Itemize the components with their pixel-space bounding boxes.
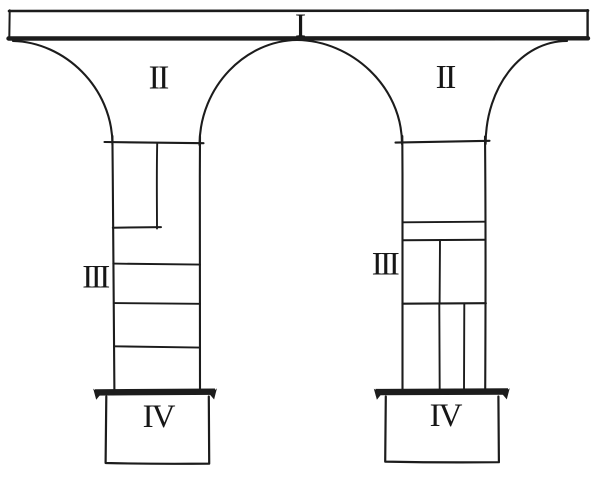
left-column-divider-2 (114, 303, 200, 304)
region-labels: I II II III III IV IV (82, 8, 462, 436)
right-column-right-edge (485, 137, 486, 392)
label-region-iii-left: III (82, 260, 109, 296)
right-column-divider-1 (403, 222, 486, 223)
left-column-divider-3 (114, 346, 200, 347)
left-column-top-line (105, 142, 204, 143)
diagram-canvas: I II II III III IV IV (0, 0, 600, 486)
right-flare-curve (486, 41, 567, 144)
right-column-divider-2 (403, 240, 486, 241)
label-region-iv-left: IV (143, 399, 176, 435)
right-column-top-line (396, 141, 490, 143)
center-arch-curve (200, 40, 403, 145)
label-region-iv-right: IV (430, 398, 463, 434)
right-plinth-bar (376, 392, 509, 393)
label-region-i-beam: I (295, 8, 306, 45)
label-region-ii-left: II (149, 60, 169, 97)
label-region-iii-right: III (372, 247, 399, 283)
left-plinth-bar (95, 392, 215, 393)
left-column-inner-horizontal (113, 227, 161, 228)
figure: I II II III III IV IV (0, 0, 600, 486)
left-column-divider-1 (113, 264, 200, 265)
left-flare-curve (13, 41, 113, 145)
right-column-divider-3 (403, 303, 486, 304)
label-region-ii-right: II (436, 59, 456, 96)
